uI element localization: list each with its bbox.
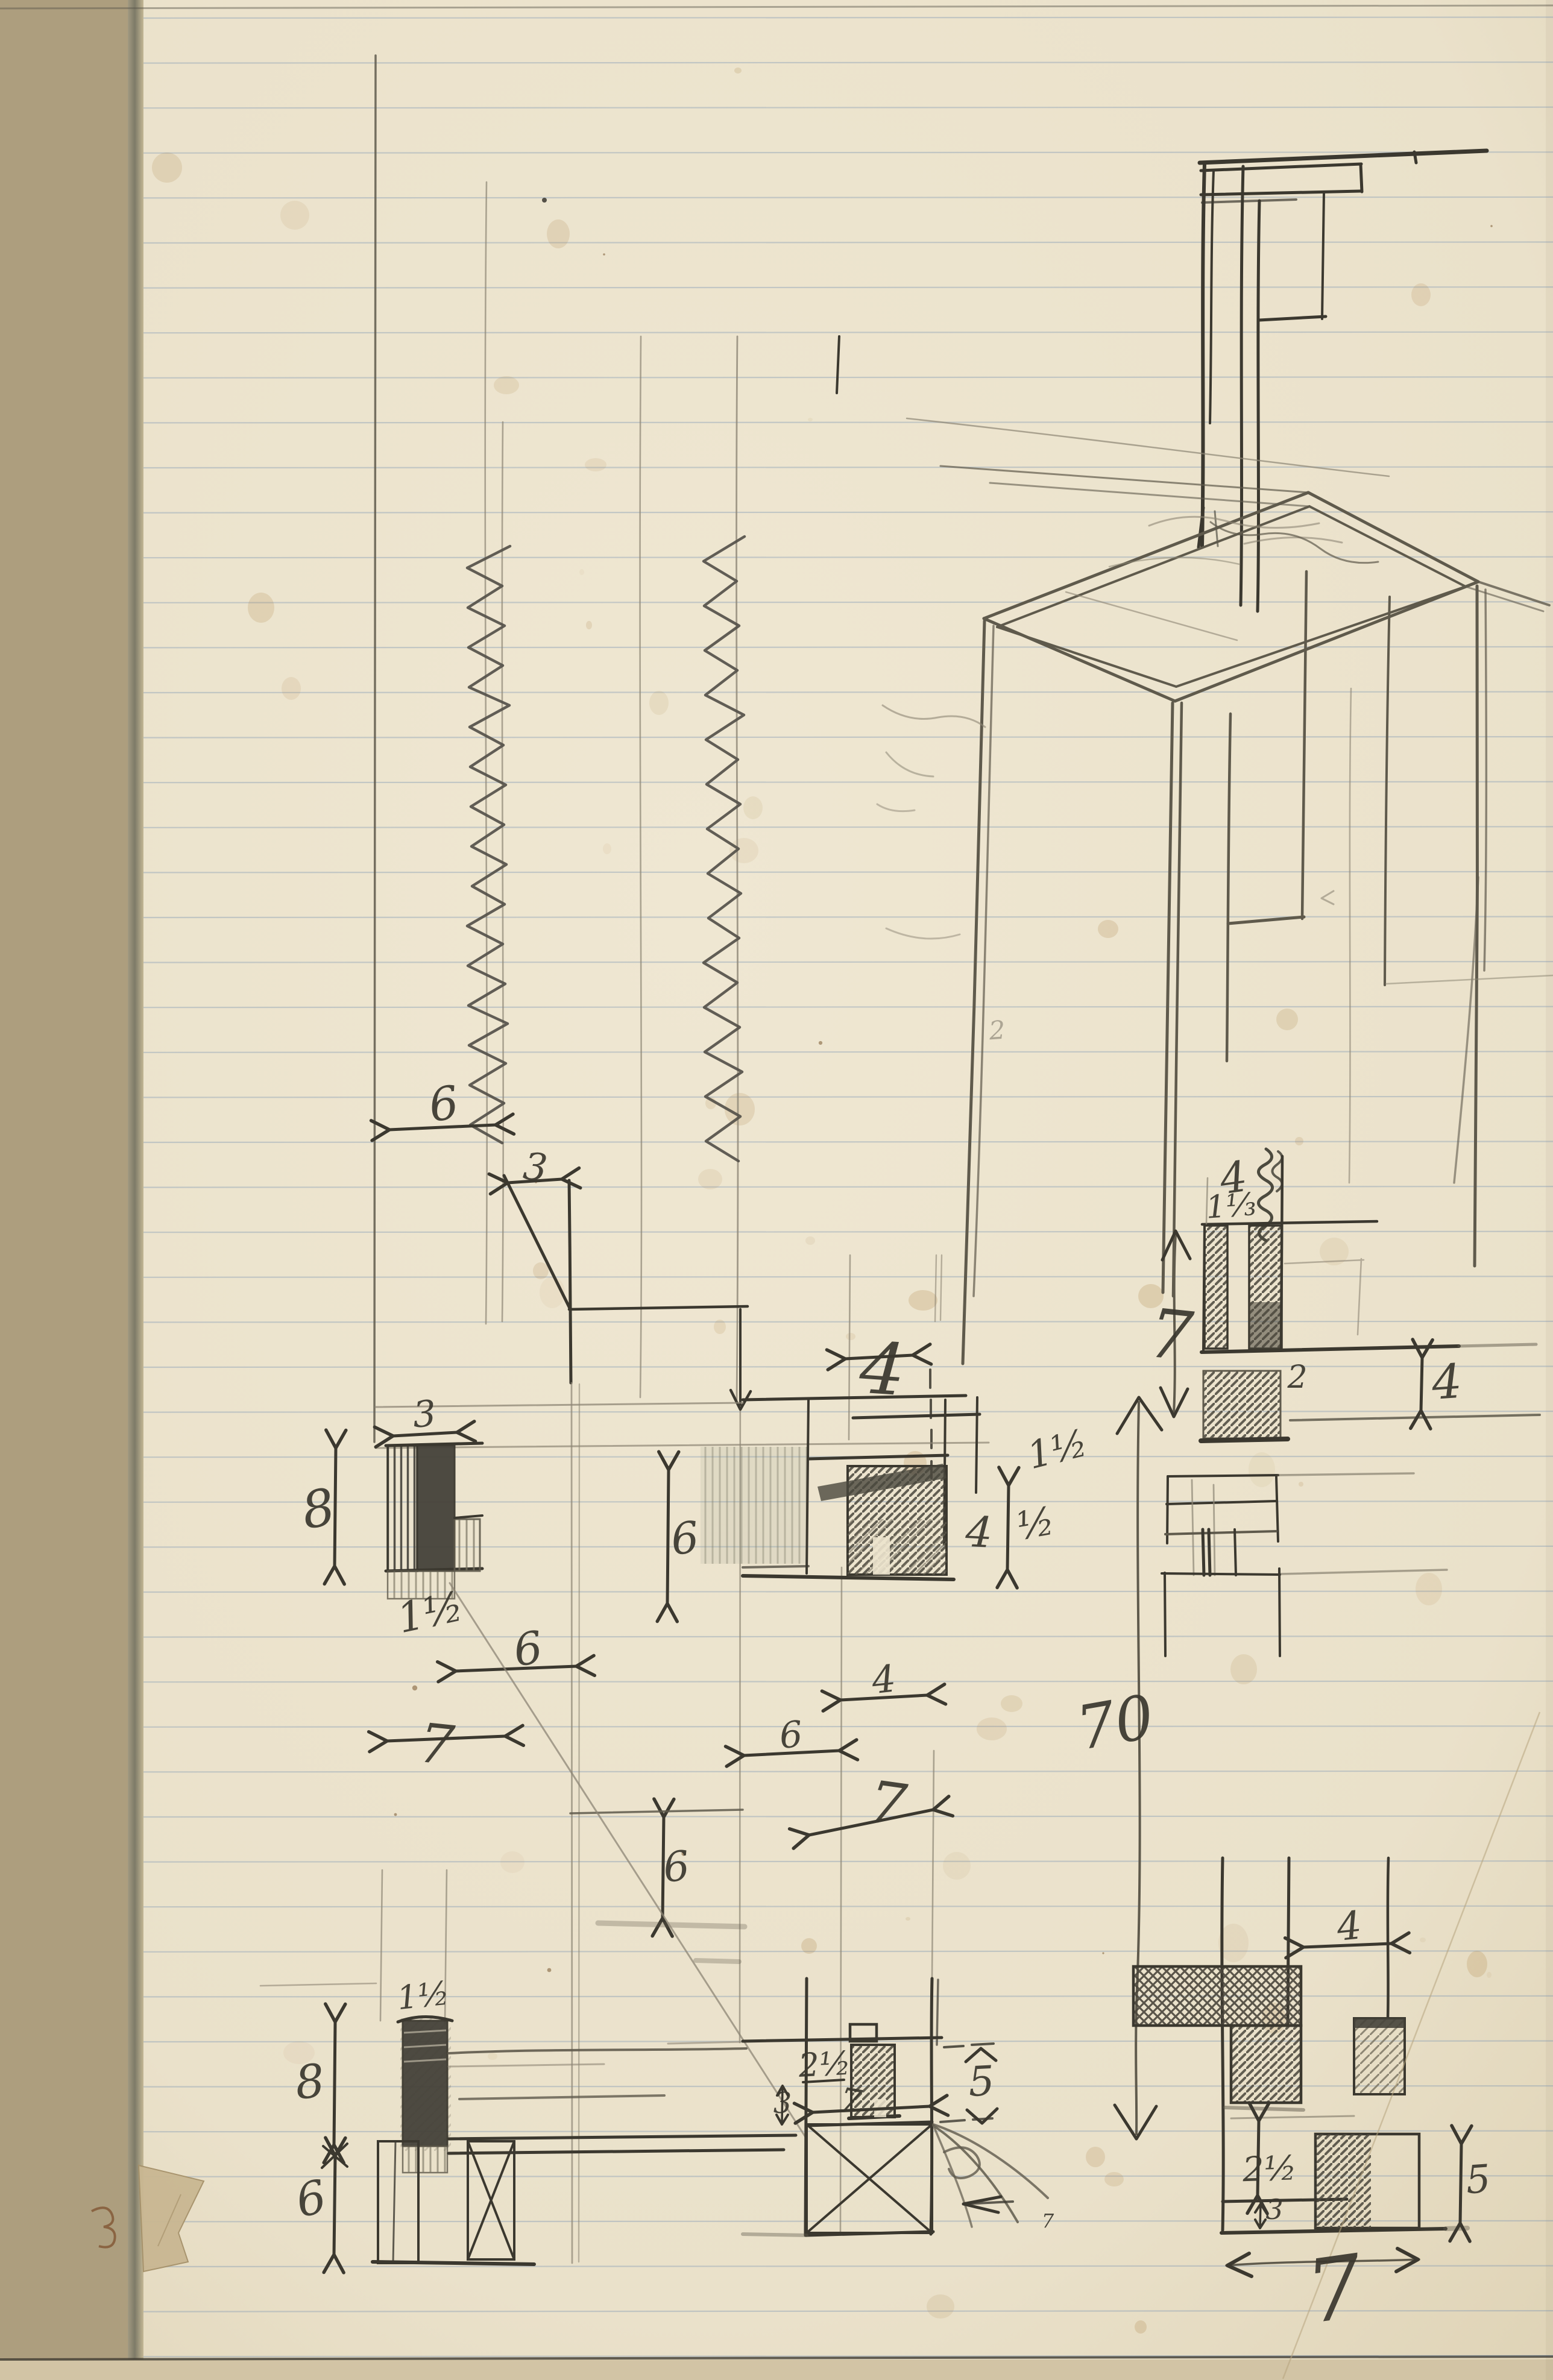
sketch-drawing xyxy=(0,0,1553,2380)
bottom-page-stack xyxy=(0,2360,1553,2380)
paper-background xyxy=(0,0,1553,2380)
ink-speck xyxy=(542,198,547,203)
gutter-shadow xyxy=(128,0,143,2380)
sketchbook-page: 634381½641½½41⅓724706746761½862½375742½3… xyxy=(0,0,1553,2380)
